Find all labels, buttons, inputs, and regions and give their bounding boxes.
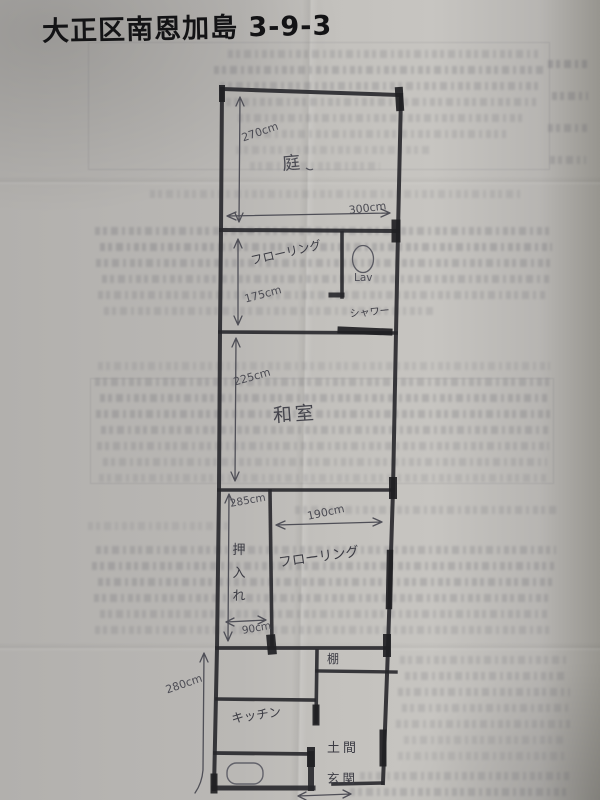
closet-char-3: れ: [231, 585, 247, 608]
room-label-closet-vertical: 押 入 れ: [231, 539, 247, 608]
room-label-lavatory: Lav: [354, 272, 373, 284]
bathtub-icon: [227, 763, 263, 784]
lavatory-bowl-icon: [353, 246, 374, 273]
room-label-japanese-room: 和室: [272, 398, 318, 428]
arrow-bottom-partial: [298, 790, 351, 800]
fixtures: [227, 168, 374, 784]
room-label-garden: 庭: [281, 148, 301, 175]
pen-tick-mark: [306, 168, 313, 170]
arrow-270cm: [235, 97, 244, 222]
floorplan-walls: [214, 89, 401, 789]
arrow-190cm: [276, 518, 382, 529]
arrow-225cm: [231, 338, 240, 481]
closet-char-2: 入: [231, 562, 247, 585]
closet-char-1: 押: [231, 539, 247, 562]
arrow-175cm: [234, 239, 242, 325]
room-label-earthen-floor: 土間: [327, 737, 359, 756]
room-label-entrance: 玄関: [327, 768, 358, 787]
floorplan-thick-wall-patches: [214, 88, 400, 790]
room-label-shelf: 棚: [327, 650, 339, 667]
photo-of-hand-drawn-floorplan: 大正区南恩加島 3-9-3: [0, 0, 600, 800]
